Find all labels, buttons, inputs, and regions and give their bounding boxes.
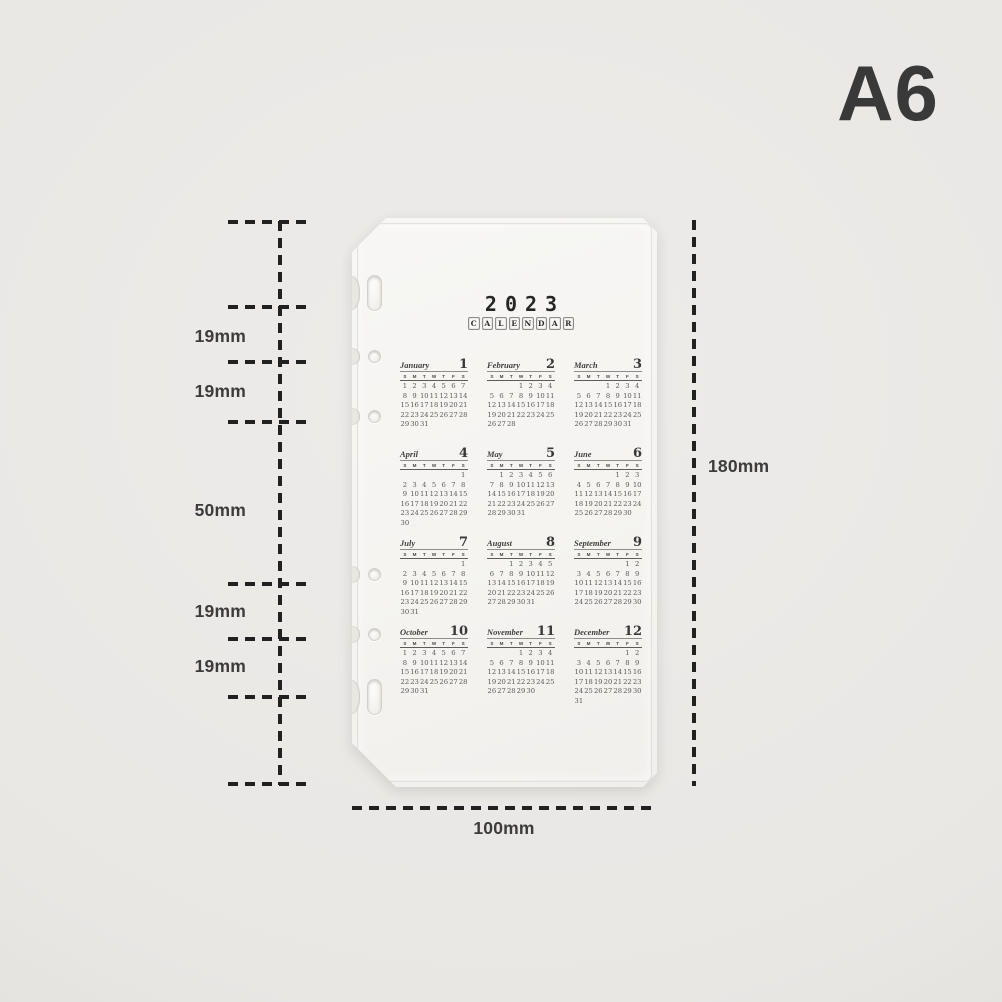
weekday-cell: T	[439, 552, 449, 557]
date-cell: 16	[400, 589, 410, 599]
date-cell: 10	[410, 490, 420, 500]
weekday-cell: F	[449, 374, 459, 379]
date-grid: 1234567891011121314151617181920212223242…	[487, 559, 555, 608]
date-grid: 1234567891011121314151617181920212223242…	[574, 381, 642, 430]
weekday-cell: T	[526, 463, 536, 468]
weekday-cell: F	[449, 463, 459, 468]
month-number: 2	[546, 360, 555, 370]
date-cell: 12	[487, 668, 497, 678]
date-cell: 18	[419, 500, 429, 510]
empty-cell	[410, 471, 420, 481]
month-header: February2	[487, 359, 555, 372]
date-cell: 5	[536, 471, 546, 481]
empty-cell	[613, 560, 623, 570]
height-dimension-line	[692, 220, 696, 786]
date-cell: 6	[603, 570, 613, 580]
date-cell: 10	[536, 392, 546, 402]
dimension-tick-hole-1	[228, 305, 308, 309]
date-cell: 18	[584, 678, 594, 688]
empty-cell	[613, 649, 623, 659]
date-cell: 28	[613, 687, 623, 697]
height-dimension-label: 180mm	[708, 456, 769, 477]
date-cell: 22	[603, 411, 613, 421]
date-cell: 7	[593, 392, 603, 402]
date-cell: 30	[400, 519, 410, 529]
date-cell: 21	[506, 678, 516, 688]
date-cell: 1	[506, 560, 516, 570]
date-cell: 13	[603, 579, 613, 589]
date-cell: 4	[584, 659, 594, 669]
date-cell: 9	[400, 579, 410, 589]
date-cell: 21	[458, 401, 468, 411]
date-cell: 21	[506, 411, 516, 421]
date-cell: 27	[584, 420, 594, 430]
date-cell: 5	[487, 392, 497, 402]
date-cell: 16	[410, 668, 420, 678]
weekday-cell: S	[487, 463, 497, 468]
empty-cell	[497, 560, 507, 570]
month-name: June	[574, 449, 591, 459]
month-name: January	[400, 360, 429, 370]
date-cell: 17	[632, 490, 642, 500]
date-cell: 23	[506, 500, 516, 510]
weekday-cell: T	[506, 463, 516, 468]
date-cell: 30	[632, 598, 642, 608]
date-cell: 16	[400, 500, 410, 510]
date-cell: 25	[429, 678, 439, 688]
date-cell: 28	[458, 411, 468, 421]
date-cell: 14	[613, 579, 623, 589]
date-cell: 25	[545, 411, 555, 421]
date-cell: 31	[410, 608, 420, 618]
date-cell: 8	[623, 570, 633, 580]
date-cell: 8	[497, 481, 507, 491]
weekday-cell: T	[613, 641, 623, 646]
empty-cell	[487, 560, 497, 570]
date-cell: 7	[449, 481, 459, 491]
month-number: 10	[450, 627, 468, 637]
empty-cell	[574, 560, 584, 570]
empty-cell	[419, 560, 429, 570]
month-header: April4	[400, 448, 468, 461]
weekday-cell: W	[516, 463, 526, 468]
date-cell: 21	[613, 589, 623, 599]
date-cell: 15	[613, 490, 623, 500]
empty-cell	[487, 382, 497, 392]
date-cell: 13	[449, 392, 459, 402]
date-cell: 20	[449, 401, 459, 411]
weekday-cell: T	[593, 463, 603, 468]
weekday-row: SMTWTFS	[487, 461, 555, 470]
weekday-cell: S	[458, 374, 468, 379]
dimension-tick-hole-6	[228, 695, 308, 699]
binder-hole-2	[368, 410, 381, 423]
date-cell: 17	[410, 500, 420, 510]
empty-cell	[584, 649, 594, 659]
weekday-cell: T	[419, 641, 429, 646]
date-cell: 12	[536, 481, 546, 491]
date-cell: 10	[536, 659, 546, 669]
empty-cell	[400, 560, 410, 570]
date-cell: 11	[574, 490, 584, 500]
date-cell: 18	[632, 401, 642, 411]
month-june: June6SMTWTFS1234567891011121314151617181…	[574, 448, 642, 526]
date-cell: 1	[458, 471, 468, 481]
date-cell: 27	[593, 509, 603, 519]
empty-cell	[449, 560, 459, 570]
date-cell: 1	[497, 471, 507, 481]
weekday-cell: T	[593, 552, 603, 557]
date-cell: 9	[526, 659, 536, 669]
date-cell: 3	[574, 659, 584, 669]
date-cell: 1	[516, 382, 526, 392]
letter-tile: C	[468, 317, 480, 330]
date-cell: 25	[419, 598, 429, 608]
weekday-cell: T	[593, 641, 603, 646]
date-grid: 1234567891011121314151617181920212223242…	[574, 559, 642, 608]
empty-cell	[584, 560, 594, 570]
date-cell: 20	[593, 500, 603, 510]
date-cell: 28	[506, 420, 516, 430]
month-name: December	[574, 627, 609, 637]
date-cell: 19	[487, 411, 497, 421]
date-cell: 8	[400, 392, 410, 402]
date-cell: 3	[419, 649, 429, 659]
weekday-cell: S	[632, 552, 642, 557]
date-cell: 12	[429, 579, 439, 589]
date-cell: 14	[593, 401, 603, 411]
dimension-tick-top-edge	[228, 220, 308, 224]
date-cell: 15	[458, 579, 468, 589]
weekday-row: SMTWTFS	[400, 639, 468, 648]
weekday-cell: T	[419, 552, 429, 557]
date-cell: 13	[449, 659, 459, 669]
date-cell: 1	[623, 649, 633, 659]
date-cell: 7	[506, 659, 516, 669]
date-cell: 21	[593, 411, 603, 421]
date-cell: 23	[400, 509, 410, 519]
weekday-row: SMTWTFS	[574, 372, 642, 381]
date-cell: 10	[526, 570, 536, 580]
empty-cell	[429, 471, 439, 481]
date-cell: 25	[632, 411, 642, 421]
date-cell: 16	[526, 668, 536, 678]
weekday-cell: S	[400, 374, 410, 379]
date-cell: 25	[429, 411, 439, 421]
date-cell: 11	[419, 579, 429, 589]
date-grid: 1234567891011121314151617181920212223242…	[487, 470, 555, 519]
date-cell: 6	[603, 659, 613, 669]
date-cell: 23	[526, 678, 536, 688]
date-cell: 7	[613, 570, 623, 580]
month-december: December12SMTWTFS12345678910111213141516…	[574, 626, 642, 704]
date-cell: 14	[458, 392, 468, 402]
weekday-cell: T	[593, 374, 603, 379]
date-cell: 14	[449, 490, 459, 500]
date-cell: 27	[497, 687, 507, 697]
date-cell: 6	[449, 382, 459, 392]
weekday-cell: T	[506, 641, 516, 646]
weekday-cell: S	[574, 552, 584, 557]
width-dimension-line	[352, 806, 656, 810]
date-cell: 5	[545, 560, 555, 570]
weekday-cell: W	[603, 552, 613, 557]
weekday-row: SMTWTFS	[574, 639, 642, 648]
weekday-cell: W	[603, 463, 613, 468]
date-cell: 24	[419, 411, 429, 421]
empty-cell	[593, 560, 603, 570]
date-cell: 23	[632, 678, 642, 688]
date-cell: 4	[545, 382, 555, 392]
date-cell: 9	[632, 570, 642, 580]
weekday-cell: S	[545, 641, 555, 646]
date-cell: 14	[613, 668, 623, 678]
date-cell: 27	[487, 598, 497, 608]
date-cell: 27	[439, 509, 449, 519]
weekday-cell: T	[526, 374, 536, 379]
month-header: March3	[574, 359, 642, 372]
date-cell: 3	[623, 382, 633, 392]
empty-cell	[574, 649, 584, 659]
date-cell: 21	[487, 500, 497, 510]
date-cell: 25	[419, 509, 429, 519]
date-cell: 25	[545, 678, 555, 688]
hole-spacing-label-4: 19mm	[160, 601, 246, 622]
month-name: October	[400, 627, 428, 637]
date-cell: 8	[613, 481, 623, 491]
empty-cell	[506, 649, 516, 659]
date-cell: 28	[487, 509, 497, 519]
date-cell: 22	[506, 589, 516, 599]
date-cell: 8	[516, 392, 526, 402]
date-cell: 30	[516, 598, 526, 608]
date-cell: 3	[410, 481, 420, 491]
weekday-cell: W	[429, 463, 439, 468]
month-header: September9	[574, 537, 642, 550]
empty-cell	[593, 382, 603, 392]
date-cell: 17	[574, 589, 584, 599]
month-name: September	[574, 538, 611, 548]
date-cell: 1	[458, 560, 468, 570]
date-cell: 4	[545, 649, 555, 659]
date-cell: 13	[439, 579, 449, 589]
weekday-cell: S	[458, 641, 468, 646]
weekday-cell: S	[458, 552, 468, 557]
date-cell: 10	[574, 579, 584, 589]
date-cell: 2	[410, 649, 420, 659]
month-february: February2SMTWTFS123456789101112131415161…	[487, 359, 555, 437]
month-number: 9	[633, 538, 642, 548]
date-cell: 1	[623, 560, 633, 570]
date-cell: 26	[429, 598, 439, 608]
calendar-year: 2023	[400, 292, 642, 316]
weekday-cell: M	[584, 641, 594, 646]
date-cell: 16	[410, 401, 420, 411]
date-cell: 6	[439, 481, 449, 491]
empty-cell	[449, 471, 459, 481]
month-september: September9SMTWTFS12345678910111213141516…	[574, 537, 642, 615]
date-cell: 15	[400, 401, 410, 411]
empty-cell	[487, 649, 497, 659]
hole-spacing-label-3: 50mm	[160, 500, 246, 521]
date-cell: 23	[526, 411, 536, 421]
weekday-cell: M	[497, 552, 507, 557]
month-may: May5SMTWTFS12345678910111213141516171819…	[487, 448, 555, 526]
weekday-cell: S	[574, 374, 584, 379]
weekday-cell: T	[613, 374, 623, 379]
month-number: 7	[459, 538, 468, 548]
date-cell: 29	[506, 598, 516, 608]
date-cell: 14	[506, 668, 516, 678]
date-cell: 7	[506, 392, 516, 402]
date-cell: 28	[497, 598, 507, 608]
date-cell: 30	[410, 420, 420, 430]
date-cell: 16	[506, 490, 516, 500]
date-cell: 13	[593, 490, 603, 500]
month-number: 5	[546, 449, 555, 459]
date-cell: 2	[506, 471, 516, 481]
weekday-row: SMTWTFS	[574, 461, 642, 470]
dimension-tick-bottom-edge	[228, 782, 308, 786]
month-april: April4SMTWTFS123456789101112131415161718…	[400, 448, 468, 526]
calendar-title-tiles: CALENDAR	[400, 317, 642, 330]
binder-hole-3	[368, 568, 381, 581]
month-header: July7	[400, 537, 468, 550]
date-cell: 17	[574, 678, 584, 688]
date-cell: 29	[458, 509, 468, 519]
date-cell: 22	[400, 678, 410, 688]
date-cell: 19	[429, 589, 439, 599]
date-cell: 28	[449, 598, 459, 608]
date-cell: 12	[574, 401, 584, 411]
date-cell: 6	[449, 649, 459, 659]
date-cell: 23	[623, 500, 633, 510]
letter-tile: N	[522, 317, 534, 330]
date-cell: 17	[623, 401, 633, 411]
date-cell: 21	[613, 678, 623, 688]
empty-cell	[487, 471, 497, 481]
date-cell: 29	[623, 598, 633, 608]
weekday-cell: W	[603, 374, 613, 379]
date-cell: 15	[516, 668, 526, 678]
date-cell: 5	[593, 659, 603, 669]
weekday-cell: S	[487, 641, 497, 646]
hole-spacing-label-2: 19mm	[160, 381, 246, 402]
weekday-cell: W	[516, 552, 526, 557]
date-cell: 28	[449, 509, 459, 519]
months-grid: January1SMTWTFS1234567891011121314151617…	[400, 359, 642, 704]
date-cell: 20	[603, 589, 613, 599]
date-cell: 30	[506, 509, 516, 519]
month-name: July	[400, 538, 415, 548]
month-header: December12	[574, 626, 642, 639]
date-cell: 17	[410, 589, 420, 599]
date-cell: 1	[603, 382, 613, 392]
date-cell: 16	[623, 490, 633, 500]
date-cell: 24	[536, 678, 546, 688]
date-cell: 3	[536, 649, 546, 659]
empty-cell	[574, 471, 584, 481]
date-cell: 9	[410, 659, 420, 669]
date-cell: 12	[593, 579, 603, 589]
date-cell: 24	[623, 411, 633, 421]
date-cell: 3	[632, 471, 642, 481]
date-cell: 12	[439, 392, 449, 402]
month-number: 12	[624, 627, 642, 637]
weekday-cell: W	[429, 374, 439, 379]
date-cell: 2	[623, 471, 633, 481]
date-cell: 7	[458, 382, 468, 392]
weekday-cell: W	[429, 641, 439, 646]
date-cell: 7	[613, 659, 623, 669]
empty-cell	[439, 471, 449, 481]
date-grid: 1234567891011121314151617181920212223242…	[400, 381, 468, 430]
date-cell: 13	[545, 481, 555, 491]
date-cell: 5	[439, 382, 449, 392]
date-cell: 14	[497, 579, 507, 589]
date-cell: 11	[419, 490, 429, 500]
date-cell: 14	[506, 401, 516, 411]
month-name: November	[487, 627, 523, 637]
month-november: November11SMTWTFS12345678910111213141516…	[487, 626, 555, 704]
date-cell: 10	[516, 481, 526, 491]
date-cell: 14	[449, 579, 459, 589]
date-grid: 1234567891011121314151617181920212223242…	[487, 381, 555, 430]
weekday-cell: F	[536, 463, 546, 468]
date-cell: 2	[400, 570, 410, 580]
weekday-cell: T	[526, 641, 536, 646]
date-cell: 12	[429, 490, 439, 500]
empty-cell	[603, 560, 613, 570]
date-cell: 8	[458, 481, 468, 491]
date-cell: 13	[487, 579, 497, 589]
date-cell: 26	[439, 678, 449, 688]
date-cell: 11	[536, 570, 546, 580]
date-cell: 16	[613, 401, 623, 411]
date-cell: 29	[400, 420, 410, 430]
empty-cell	[593, 471, 603, 481]
date-cell: 26	[545, 589, 555, 599]
edge-notch	[343, 408, 360, 425]
empty-cell	[400, 471, 410, 481]
date-cell: 19	[536, 490, 546, 500]
date-cell: 9	[516, 570, 526, 580]
month-header: June6	[574, 448, 642, 461]
date-cell: 26	[593, 598, 603, 608]
date-cell: 1	[613, 471, 623, 481]
weekday-cell: T	[439, 463, 449, 468]
date-cell: 11	[429, 659, 439, 669]
date-cell: 31	[526, 598, 536, 608]
date-cell: 13	[497, 668, 507, 678]
weekday-cell: F	[449, 552, 459, 557]
date-cell: 21	[497, 589, 507, 599]
date-grid: 1234567891011121314151617181920212223242…	[400, 648, 468, 697]
empty-cell	[419, 471, 429, 481]
weekday-cell: F	[623, 463, 633, 468]
date-cell: 6	[497, 659, 507, 669]
date-cell: 5	[429, 570, 439, 580]
date-cell: 6	[545, 471, 555, 481]
date-cell: 26	[429, 509, 439, 519]
empty-cell	[603, 649, 613, 659]
date-cell: 8	[516, 659, 526, 669]
date-cell: 19	[584, 500, 594, 510]
empty-cell	[429, 560, 439, 570]
date-cell: 9	[506, 481, 516, 491]
date-cell: 28	[458, 678, 468, 688]
date-cell: 7	[603, 481, 613, 491]
